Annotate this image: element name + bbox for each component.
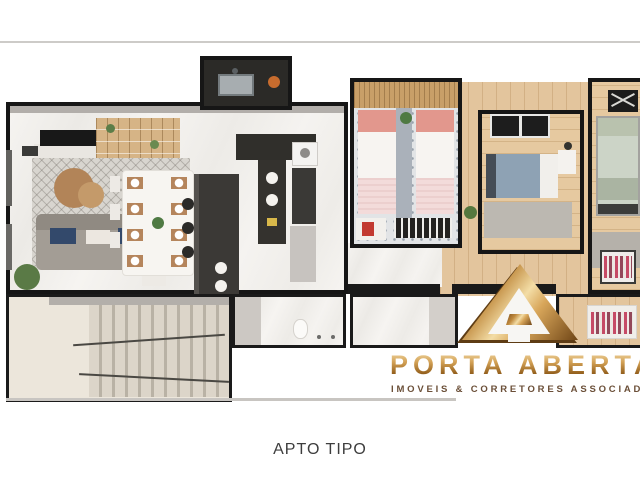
plate bbox=[266, 172, 278, 184]
washing-machine bbox=[292, 142, 318, 166]
vase bbox=[564, 142, 572, 150]
stool bbox=[182, 222, 194, 234]
place-setting bbox=[127, 255, 143, 267]
dining-chair bbox=[110, 176, 120, 192]
pink-blanket bbox=[358, 178, 396, 214]
coffee-table-2 bbox=[78, 182, 104, 208]
master-bedroom bbox=[588, 78, 640, 294]
navy-pillow bbox=[50, 228, 76, 244]
brand-title: PORTA ABERTA bbox=[390, 350, 640, 381]
skylight-window bbox=[490, 114, 550, 138]
stairwell bbox=[6, 294, 232, 402]
kitchen-island bbox=[194, 174, 239, 296]
bedroom-rug bbox=[484, 202, 572, 238]
hall-plant bbox=[464, 206, 477, 219]
stairs bbox=[89, 305, 229, 397]
slat-headboard-wall bbox=[354, 82, 458, 108]
pink-blanket bbox=[416, 178, 454, 214]
red-artwork bbox=[362, 222, 374, 236]
toilet bbox=[293, 319, 308, 339]
stool bbox=[182, 246, 194, 258]
bathroom-1 bbox=[232, 294, 346, 348]
sink bbox=[218, 74, 254, 96]
plate bbox=[215, 262, 227, 274]
white-pillow bbox=[86, 230, 110, 244]
nightstand bbox=[558, 150, 576, 174]
blue-bedroom bbox=[478, 110, 584, 254]
shower-floor bbox=[429, 297, 455, 345]
bathroom-2 bbox=[350, 294, 458, 348]
bed-headboard bbox=[486, 154, 496, 198]
real-estate-floorplan-image: PORTA ABERTA IMOVEIS & CORRETORES ASSOCI… bbox=[0, 0, 640, 480]
fixture bbox=[331, 335, 335, 339]
tv bbox=[40, 130, 104, 146]
kitchen-sink-niche bbox=[200, 56, 292, 110]
top-facade-line bbox=[0, 41, 640, 43]
shower-floor bbox=[235, 297, 261, 345]
service-cabinet bbox=[292, 168, 316, 224]
triangle-a-crossbar bbox=[506, 314, 532, 325]
shelf-plant bbox=[106, 124, 115, 133]
blue-duvet bbox=[496, 154, 540, 198]
food-platter bbox=[268, 76, 280, 88]
centerpiece-plant bbox=[152, 217, 164, 229]
triangle-a-leg-gap bbox=[508, 328, 530, 342]
kitchen-counter-side bbox=[258, 160, 286, 244]
kitchen-item bbox=[267, 218, 277, 226]
brand-subtitle: IMOVEIS & CORRETORES ASSOCIADOS bbox=[391, 384, 640, 395]
media-device bbox=[22, 146, 38, 156]
stair-wall-face bbox=[49, 297, 229, 305]
pink-pillow bbox=[416, 110, 454, 132]
place-setting bbox=[127, 177, 143, 189]
nightstand-plant bbox=[400, 112, 412, 124]
slatted-crib bbox=[394, 218, 452, 238]
dining-chair bbox=[110, 204, 120, 220]
place-setting bbox=[127, 229, 143, 241]
plate bbox=[266, 194, 278, 206]
bottom-slab-line bbox=[6, 398, 456, 401]
marble-corridor bbox=[348, 243, 442, 287]
twin-bed bbox=[358, 110, 396, 214]
washer-door bbox=[300, 148, 310, 158]
bedroom-runner bbox=[396, 108, 412, 220]
closet-island bbox=[600, 250, 636, 284]
left-window-2 bbox=[6, 224, 12, 270]
window-mullion bbox=[519, 116, 522, 136]
plate bbox=[215, 280, 227, 292]
service-base bbox=[290, 226, 316, 282]
caption: APTO TIPO bbox=[0, 441, 640, 459]
bed-bench bbox=[598, 204, 638, 214]
floor-plant bbox=[14, 264, 40, 290]
sage-pillows bbox=[598, 118, 638, 136]
place-setting bbox=[127, 203, 143, 215]
living-kitchen-room bbox=[6, 102, 348, 294]
pink-pillow bbox=[358, 110, 396, 132]
stool bbox=[182, 198, 194, 210]
twin-bed bbox=[416, 110, 454, 214]
master-bed bbox=[596, 116, 640, 216]
corridor-wall bbox=[348, 284, 440, 294]
bed-sheet bbox=[540, 154, 558, 198]
twin-bedroom bbox=[350, 78, 462, 248]
shelf-plant-2 bbox=[150, 140, 159, 149]
left-window bbox=[6, 150, 12, 206]
hanging-clothes bbox=[604, 256, 632, 278]
wall-face bbox=[10, 106, 344, 113]
place-setting bbox=[171, 177, 187, 189]
hanging-clothes bbox=[591, 312, 633, 334]
sage-blanket bbox=[598, 178, 638, 200]
ceiling-fan bbox=[608, 90, 638, 112]
desk bbox=[356, 218, 386, 240]
clothes-rack bbox=[587, 305, 637, 339]
faucet bbox=[232, 68, 238, 74]
dining-chair bbox=[110, 232, 120, 248]
dining-chair bbox=[142, 276, 166, 286]
fixture bbox=[317, 335, 321, 339]
